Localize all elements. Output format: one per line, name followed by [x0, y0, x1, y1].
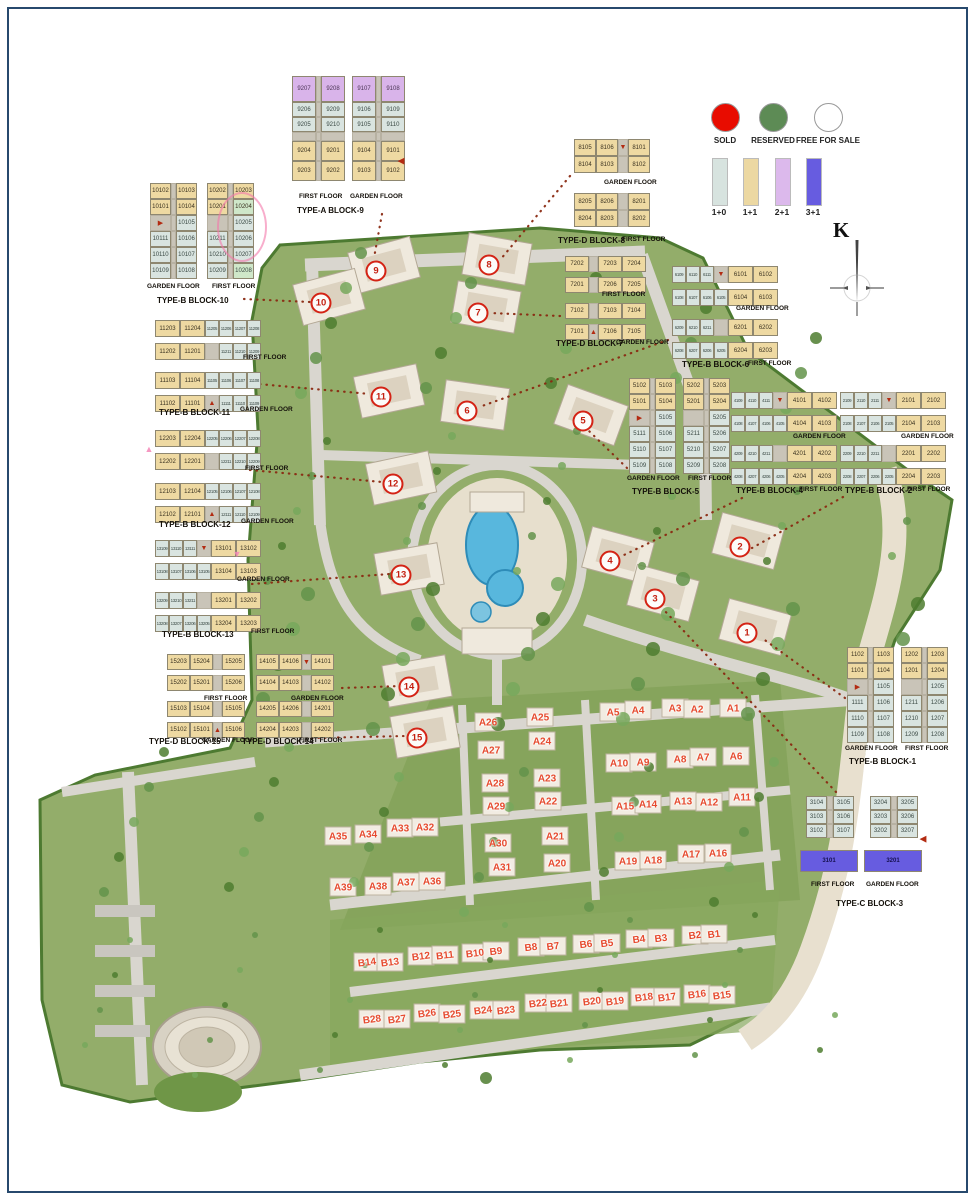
unit-cell[interactable]: 12205 [205, 430, 219, 447]
villa-label[interactable]: A22 [539, 797, 557, 808]
unit-cell[interactable]: 2104 [896, 415, 921, 432]
unit-cell[interactable]: 4210 [745, 445, 759, 462]
unit-cell[interactable]: 4109 [731, 392, 745, 409]
unit-cell[interactable]: 15205 [222, 654, 245, 670]
unit-cell[interactable]: 10104 [176, 199, 197, 215]
unit-cell[interactable]: 6103 [753, 289, 778, 306]
unit-cell[interactable]: 1209 [901, 727, 922, 743]
unit-cell[interactable]: 4205 [773, 468, 787, 485]
unit-cell[interactable]: 1108 [873, 727, 894, 743]
villa-label[interactable]: A3 [669, 704, 682, 715]
villa-label[interactable]: A39 [334, 883, 352, 894]
unit-cell[interactable]: 11106 [219, 372, 233, 389]
building-number-badge[interactable]: 7 [468, 303, 489, 324]
villa-label[interactable]: B25 [442, 1008, 462, 1021]
unit-cell[interactable]: 2211 [868, 445, 882, 462]
unit-cell[interactable]: 8101 [628, 139, 650, 156]
unit-cell[interactable]: 6205 [714, 342, 728, 359]
unit-cell[interactable]: 6107 [686, 289, 700, 306]
unit-cell[interactable]: 7104 [622, 303, 646, 319]
villa-label[interactable]: B21 [549, 997, 569, 1010]
unit-cell[interactable]: 4104 [787, 415, 812, 432]
unit-cell[interactable]: 8106 [596, 139, 618, 156]
unit-cell[interactable]: 5210 [683, 442, 704, 458]
unit-cell[interactable]: 13110 [169, 540, 183, 557]
unit-cell[interactable]: 9206 [292, 102, 316, 117]
unit-cell[interactable]: 9104 [352, 141, 376, 161]
unit-cell[interactable]: 7105 [622, 324, 646, 340]
unit-cell[interactable]: 6204 [728, 342, 753, 359]
unit-cell[interactable]: 12103 [155, 483, 180, 500]
unit-cell[interactable]: 5107 [655, 442, 676, 458]
unit-cell[interactable]: 13210 [169, 592, 183, 609]
unit-cell[interactable]: 12201 [180, 453, 205, 470]
unit-cell[interactable]: 12206 [219, 430, 233, 447]
unit-cell[interactable]: 4211 [759, 445, 773, 462]
villa-label[interactable]: A19 [619, 857, 637, 868]
unit-cell[interactable]: 2202 [921, 445, 946, 462]
unit-cell[interactable]: 15206 [222, 675, 245, 691]
villa-label[interactable]: A34 [359, 830, 377, 841]
unit-cell[interactable]: 10110 [150, 247, 171, 263]
unit-cell[interactable]: 1110 [847, 711, 868, 727]
building-number-badge[interactable]: 15 [407, 728, 428, 749]
unit-cell[interactable]: 7201 [565, 277, 589, 293]
unit-cell[interactable]: 10102 [150, 183, 171, 199]
unit-cell[interactable]: 6206 [700, 342, 714, 359]
unit-cell[interactable]: 2111 [868, 392, 882, 409]
unit-cell[interactable]: 10211 [207, 231, 228, 247]
unit-cell[interactable]: 6108 [672, 289, 686, 306]
unit-cell[interactable]: 1208 [927, 727, 948, 743]
villa-label[interactable]: B27 [387, 1013, 407, 1026]
unit-cell[interactable]: 6105 [714, 289, 728, 306]
unit-cell[interactable]: 4103 [812, 415, 837, 432]
unit-cell[interactable]: 1207 [927, 711, 948, 727]
unit-cell[interactable]: 1111 [847, 695, 868, 711]
villa-label[interactable]: B20 [582, 995, 602, 1008]
unit-cell[interactable]: 8203 [596, 210, 618, 227]
unit-cell[interactable]: 14204 [256, 722, 279, 738]
unit-cell[interactable]: 2206 [868, 468, 882, 485]
unit-cell[interactable]: 4209 [731, 445, 745, 462]
unit-cell[interactable]: 11202 [155, 343, 180, 360]
unit-cell[interactable]: 4207 [745, 468, 759, 485]
villa-label[interactable]: B10 [465, 947, 485, 960]
unit-cell[interactable]: 7102 [565, 303, 589, 319]
unit-cell[interactable]: 14205 [256, 701, 279, 717]
unit-cell[interactable]: 14101 [311, 654, 334, 670]
villa-label[interactable]: A23 [538, 774, 556, 785]
building-number-badge[interactable]: 4 [600, 551, 621, 572]
unit-cell[interactable]: 9107 [352, 76, 376, 102]
villa-label[interactable]: B5 [600, 938, 614, 950]
unit-cell[interactable]: 5106 [655, 426, 676, 442]
unit-cell[interactable]: 8205 [574, 193, 596, 210]
unit-cell[interactable]: 14206 [279, 701, 302, 717]
unit-cell[interactable]: 4206 [759, 468, 773, 485]
villa-label[interactable]: B2 [688, 930, 702, 942]
unit-cell[interactable]: 8105 [574, 139, 596, 156]
building-number-badge[interactable]: 13 [391, 565, 412, 586]
unit-cell[interactable]: 4102 [812, 392, 837, 409]
unit-cell[interactable]: 1210 [901, 711, 922, 727]
unit-cell[interactable]: 4105 [773, 415, 787, 432]
unit-cell[interactable]: 10206 [233, 231, 254, 247]
unit-cell[interactable]: 8104 [574, 156, 596, 173]
unit-cell[interactable]: 1206 [927, 695, 948, 711]
villa-label[interactable]: A32 [416, 823, 434, 834]
unit-cell[interactable]: 1109 [847, 727, 868, 743]
unit-cell[interactable]: 10207 [233, 247, 254, 263]
unit-cell[interactable]: 10107 [176, 247, 197, 263]
unit-cell[interactable]: 1104 [873, 663, 894, 679]
unit-cell[interactable]: 10106 [176, 231, 197, 247]
building-number-badge[interactable]: 14 [399, 677, 420, 698]
building-number-badge[interactable]: 9 [366, 261, 387, 282]
unit-cell[interactable]: 9202 [321, 161, 345, 181]
villa-label[interactable]: B18 [634, 991, 654, 1004]
unit-cell[interactable]: 8103 [596, 156, 618, 173]
unit-cell[interactable]: 10202 [207, 183, 228, 199]
unit-cell[interactable]: 6109 [672, 266, 686, 283]
unit-cell[interactable]: 5108 [655, 458, 676, 474]
unit-cell[interactable]: 3101 [800, 850, 858, 872]
unit-cell[interactable]: 11208 [247, 320, 261, 337]
unit-cell[interactable]: 5105 [655, 410, 676, 426]
unit-cell[interactable]: 11211 [219, 343, 233, 360]
villa-label[interactable]: A9 [637, 758, 650, 769]
unit-cell[interactable]: 13104 [211, 563, 236, 580]
unit-cell[interactable]: 3106 [833, 810, 854, 824]
unit-cell[interactable]: 8204 [574, 210, 596, 227]
unit-cell[interactable]: 11206 [219, 320, 233, 337]
villa-label[interactable]: B7 [546, 941, 560, 953]
unit-cell[interactable]: 5205 [709, 410, 730, 426]
villa-label[interactable]: A38 [369, 882, 387, 893]
unit-cell[interactable]: 2109 [840, 392, 854, 409]
unit-cell[interactable]: 1202 [901, 647, 922, 663]
unit-cell[interactable]: 6207 [686, 342, 700, 359]
unit-cell[interactable]: 6101 [728, 266, 753, 283]
villa-label[interactable]: B6 [579, 939, 593, 951]
building-number-badge[interactable]: 8 [479, 255, 500, 276]
unit-cell[interactable]: 6202 [753, 319, 778, 336]
unit-cell[interactable]: 11201 [180, 343, 205, 360]
villa-label[interactable]: A30 [489, 839, 507, 850]
unit-cell[interactable]: 6104 [728, 289, 753, 306]
villa-label[interactable]: A12 [700, 798, 718, 809]
unit-cell[interactable]: 4203 [812, 468, 837, 485]
villa-label[interactable]: A5 [607, 708, 620, 719]
unit-cell[interactable]: 9204 [292, 141, 316, 161]
unit-cell[interactable]: 13107 [169, 563, 183, 580]
unit-cell[interactable]: 11105 [205, 372, 219, 389]
unit-cell[interactable]: 13109 [155, 540, 169, 557]
unit-cell[interactable]: 2207 [854, 468, 868, 485]
unit-cell[interactable]: 1205 [927, 679, 948, 695]
unit-cell[interactable]: 4106 [759, 415, 773, 432]
unit-cell[interactable]: 6203 [753, 342, 778, 359]
unit-cell[interactable]: 4202 [812, 445, 837, 462]
building-number-badge[interactable]: 12 [383, 474, 404, 495]
unit-cell[interactable]: 11108 [247, 372, 261, 389]
building-number-badge[interactable]: 2 [730, 537, 751, 558]
villa-label[interactable]: A7 [697, 753, 710, 764]
unit-cell[interactable]: 5110 [629, 442, 650, 458]
unit-cell[interactable]: 10203 [233, 183, 254, 199]
unit-cell[interactable]: 9108 [381, 76, 405, 102]
villa-label[interactable]: B15 [712, 989, 732, 1002]
unit-cell[interactable]: 5208 [709, 458, 730, 474]
villa-label[interactable]: A25 [531, 713, 549, 724]
villa-label[interactable]: B28 [362, 1013, 382, 1026]
unit-cell[interactable]: 2210 [854, 445, 868, 462]
unit-cell[interactable]: 13202 [236, 592, 261, 609]
unit-cell[interactable]: 5104 [655, 394, 676, 410]
unit-cell[interactable]: 10109 [150, 263, 171, 279]
unit-cell[interactable]: 1101 [847, 663, 868, 679]
unit-cell[interactable]: 4208 [731, 468, 745, 485]
unit-cell[interactable]: 10204 [233, 199, 254, 215]
unit-cell[interactable]: 9210 [321, 117, 345, 132]
unit-cell[interactable]: 12208 [247, 430, 261, 447]
unit-cell[interactable]: 7101 [565, 324, 589, 340]
villa-label[interactable]: B24 [473, 1004, 493, 1017]
unit-cell[interactable]: 1201 [901, 663, 922, 679]
villa-label[interactable]: A14 [639, 800, 657, 811]
unit-cell[interactable]: 15203 [167, 654, 190, 670]
unit-cell[interactable]: 3207 [897, 824, 918, 838]
unit-cell[interactable]: 14201 [311, 701, 334, 717]
unit-cell[interactable]: 9105 [352, 117, 376, 132]
unit-cell[interactable]: 10210 [207, 247, 228, 263]
unit-cell[interactable]: 4101 [787, 392, 812, 409]
villa-label[interactable]: A6 [730, 752, 743, 763]
unit-cell[interactable]: 2108 [840, 415, 854, 432]
unit-cell[interactable]: 6210 [686, 319, 700, 336]
unit-cell[interactable]: 11103 [155, 372, 180, 389]
unit-cell[interactable]: 7103 [598, 303, 622, 319]
villa-label[interactable]: A8 [674, 755, 687, 766]
unit-cell[interactable]: 7204 [622, 256, 646, 272]
villa-label[interactable]: A24 [533, 737, 551, 748]
unit-cell[interactable]: 12207 [233, 430, 247, 447]
villa-label[interactable]: B4 [632, 934, 646, 946]
unit-cell[interactable]: 4107 [745, 415, 759, 432]
villa-label[interactable]: B26 [417, 1007, 437, 1020]
unit-cell[interactable]: 11107 [233, 372, 247, 389]
unit-cell[interactable]: 5204 [709, 394, 730, 410]
unit-cell[interactable]: 7203 [598, 256, 622, 272]
unit-cell[interactable]: 3206 [897, 810, 918, 824]
unit-cell[interactable]: 5201 [683, 394, 704, 410]
unit-cell[interactable]: 4108 [731, 415, 745, 432]
unit-cell[interactable]: 11204 [180, 320, 205, 337]
unit-cell[interactable]: 8202 [628, 210, 650, 227]
unit-cell[interactable]: 6111 [700, 266, 714, 283]
villa-label[interactable]: B22 [528, 997, 548, 1010]
unit-cell[interactable]: 13211 [183, 592, 197, 609]
unit-cell[interactable]: 11207 [233, 320, 247, 337]
unit-cell[interactable]: 2103 [921, 415, 946, 432]
unit-cell[interactable]: 5202 [683, 378, 704, 394]
unit-cell[interactable]: 14103 [279, 675, 302, 691]
building-number-badge[interactable]: 11 [371, 387, 392, 408]
unit-cell[interactable]: 6106 [700, 289, 714, 306]
unit-cell[interactable]: 13105 [197, 563, 211, 580]
unit-cell[interactable]: 13201 [211, 592, 236, 609]
unit-cell[interactable]: 3105 [833, 796, 854, 810]
unit-cell[interactable]: 9106 [352, 102, 376, 117]
unit-cell[interactable]: 9201 [321, 141, 345, 161]
unit-cell[interactable]: 15201 [190, 675, 213, 691]
unit-cell[interactable]: 9207 [292, 76, 316, 102]
unit-cell[interactable]: 15103 [167, 701, 190, 717]
villa-label[interactable]: A36 [423, 877, 441, 888]
unit-cell[interactable]: 3107 [833, 824, 854, 838]
unit-cell[interactable]: 13111 [183, 540, 197, 557]
unit-cell[interactable]: 5206 [709, 426, 730, 442]
unit-cell[interactable]: 10208 [233, 263, 254, 279]
unit-cell[interactable]: 10111 [150, 231, 171, 247]
unit-cell[interactable]: 9203 [292, 161, 316, 181]
unit-cell[interactable]: 7202 [565, 256, 589, 272]
unit-cell[interactable]: 2208 [840, 468, 854, 485]
building-number-badge[interactable]: 10 [311, 293, 332, 314]
unit-cell[interactable]: 8206 [596, 193, 618, 210]
unit-cell[interactable]: 10201 [207, 199, 228, 215]
unit-cell[interactable]: 1102 [847, 647, 868, 663]
villa-label[interactable]: A1 [727, 704, 740, 715]
unit-cell[interactable]: 12203 [155, 430, 180, 447]
unit-cell[interactable]: 15105 [222, 701, 245, 717]
unit-cell[interactable]: 2205 [882, 468, 896, 485]
unit-cell[interactable]: 11203 [155, 320, 180, 337]
unit-cell[interactable]: 2203 [921, 468, 946, 485]
unit-cell[interactable]: 14104 [256, 675, 279, 691]
unit-cell[interactable]: 13209 [155, 592, 169, 609]
villa-label[interactable]: A15 [616, 802, 634, 813]
unit-cell[interactable]: 2110 [854, 392, 868, 409]
unit-cell[interactable]: 9110 [381, 117, 405, 132]
unit-cell[interactable]: 3205 [897, 796, 918, 810]
villa-label[interactable]: B14 [357, 956, 377, 969]
villa-label[interactable]: A4 [632, 706, 645, 717]
unit-cell[interactable]: 12204 [180, 430, 205, 447]
villa-label[interactable]: A28 [486, 779, 504, 790]
unit-cell[interactable]: 12106 [219, 483, 233, 500]
villa-label[interactable]: A26 [479, 718, 497, 729]
unit-cell[interactable]: 6201 [728, 319, 753, 336]
villa-label[interactable]: B17 [657, 991, 677, 1004]
unit-cell[interactable]: 1105 [873, 679, 894, 695]
villa-label[interactable]: A35 [329, 832, 347, 843]
villa-label[interactable]: A33 [391, 824, 409, 835]
villa-label[interactable]: B13 [380, 956, 400, 969]
villa-label[interactable]: A16 [709, 849, 727, 860]
unit-cell[interactable]: 9109 [381, 102, 405, 117]
unit-cell[interactable]: 5211 [683, 426, 704, 442]
villa-label[interactable]: A31 [493, 863, 511, 874]
unit-cell[interactable]: 15204 [190, 654, 213, 670]
unit-cell[interactable]: 10209 [207, 263, 228, 279]
villa-label[interactable]: A27 [482, 746, 500, 757]
unit-cell[interactable]: 5102 [629, 378, 650, 394]
villa-label[interactable]: A17 [682, 850, 700, 861]
unit-cell[interactable]: 10108 [176, 263, 197, 279]
unit-cell[interactable]: 14105 [256, 654, 279, 670]
unit-cell[interactable]: 1106 [873, 695, 894, 711]
building-number-badge[interactable]: 3 [645, 589, 666, 610]
unit-cell[interactable]: 2209 [840, 445, 854, 462]
unit-cell[interactable]: 5111 [629, 426, 650, 442]
unit-cell[interactable]: 9209 [321, 102, 345, 117]
unit-cell[interactable]: 2101 [896, 392, 921, 409]
unit-cell[interactable]: 14106 [279, 654, 302, 670]
unit-cell[interactable]: 12104 [180, 483, 205, 500]
villa-label[interactable]: B9 [489, 946, 503, 958]
unit-cell[interactable]: 12107 [233, 483, 247, 500]
building-number-badge[interactable]: 1 [737, 623, 758, 644]
unit-cell[interactable]: 2106 [868, 415, 882, 432]
unit-cell[interactable]: 2105 [882, 415, 896, 432]
unit-cell[interactable]: 4111 [759, 392, 773, 409]
unit-cell[interactable]: 12105 [205, 483, 219, 500]
unit-cell[interactable]: 9208 [321, 76, 345, 102]
unit-cell[interactable]: 5103 [655, 378, 676, 394]
villa-label[interactable]: B19 [605, 995, 625, 1008]
unit-cell[interactable]: 1103 [873, 647, 894, 663]
villa-label[interactable]: A37 [397, 878, 415, 889]
villa-label[interactable]: A20 [548, 859, 566, 870]
unit-cell[interactable]: 1204 [927, 663, 948, 679]
villa-label[interactable]: B11 [435, 949, 454, 962]
unit-cell[interactable]: 3201 [864, 850, 922, 872]
villa-label[interactable]: A29 [487, 802, 505, 813]
unit-cell[interactable]: 12211 [219, 453, 233, 470]
unit-cell[interactable]: 2201 [896, 445, 921, 462]
unit-cell[interactable]: 6208 [672, 342, 686, 359]
unit-cell[interactable]: 15102 [167, 722, 190, 738]
unit-cell[interactable]: 12108 [247, 483, 261, 500]
unit-cell[interactable]: 7106 [598, 324, 622, 340]
unit-cell[interactable]: 5101 [629, 394, 650, 410]
unit-cell[interactable]: 12202 [155, 453, 180, 470]
unit-cell[interactable]: 5203 [709, 378, 730, 394]
building-number-badge[interactable]: 5 [573, 411, 594, 432]
villa-label[interactable]: B16 [687, 988, 707, 1001]
villa-label[interactable]: A11 [733, 793, 751, 804]
unit-cell[interactable]: 10105 [176, 215, 197, 231]
unit-cell[interactable]: 6211 [700, 319, 714, 336]
unit-cell[interactable]: 4110 [745, 392, 759, 409]
villa-label[interactable]: B12 [411, 950, 431, 963]
unit-cell[interactable]: 14202 [311, 722, 334, 738]
unit-cell[interactable]: 15101 [190, 722, 213, 738]
building-number-badge[interactable]: 6 [457, 401, 478, 422]
unit-cell[interactable]: 6110 [686, 266, 700, 283]
unit-cell[interactable]: 3203 [870, 810, 891, 824]
unit-cell[interactable]: 10205 [233, 215, 254, 231]
villa-label[interactable]: A21 [546, 832, 564, 843]
unit-cell[interactable]: 11205 [205, 320, 219, 337]
unit-cell[interactable]: 5207 [709, 442, 730, 458]
unit-cell[interactable]: 3102 [806, 824, 827, 838]
unit-cell[interactable]: 13106 [183, 563, 197, 580]
unit-cell[interactable]: 6102 [753, 266, 778, 283]
villa-label[interactable]: B8 [524, 942, 538, 954]
